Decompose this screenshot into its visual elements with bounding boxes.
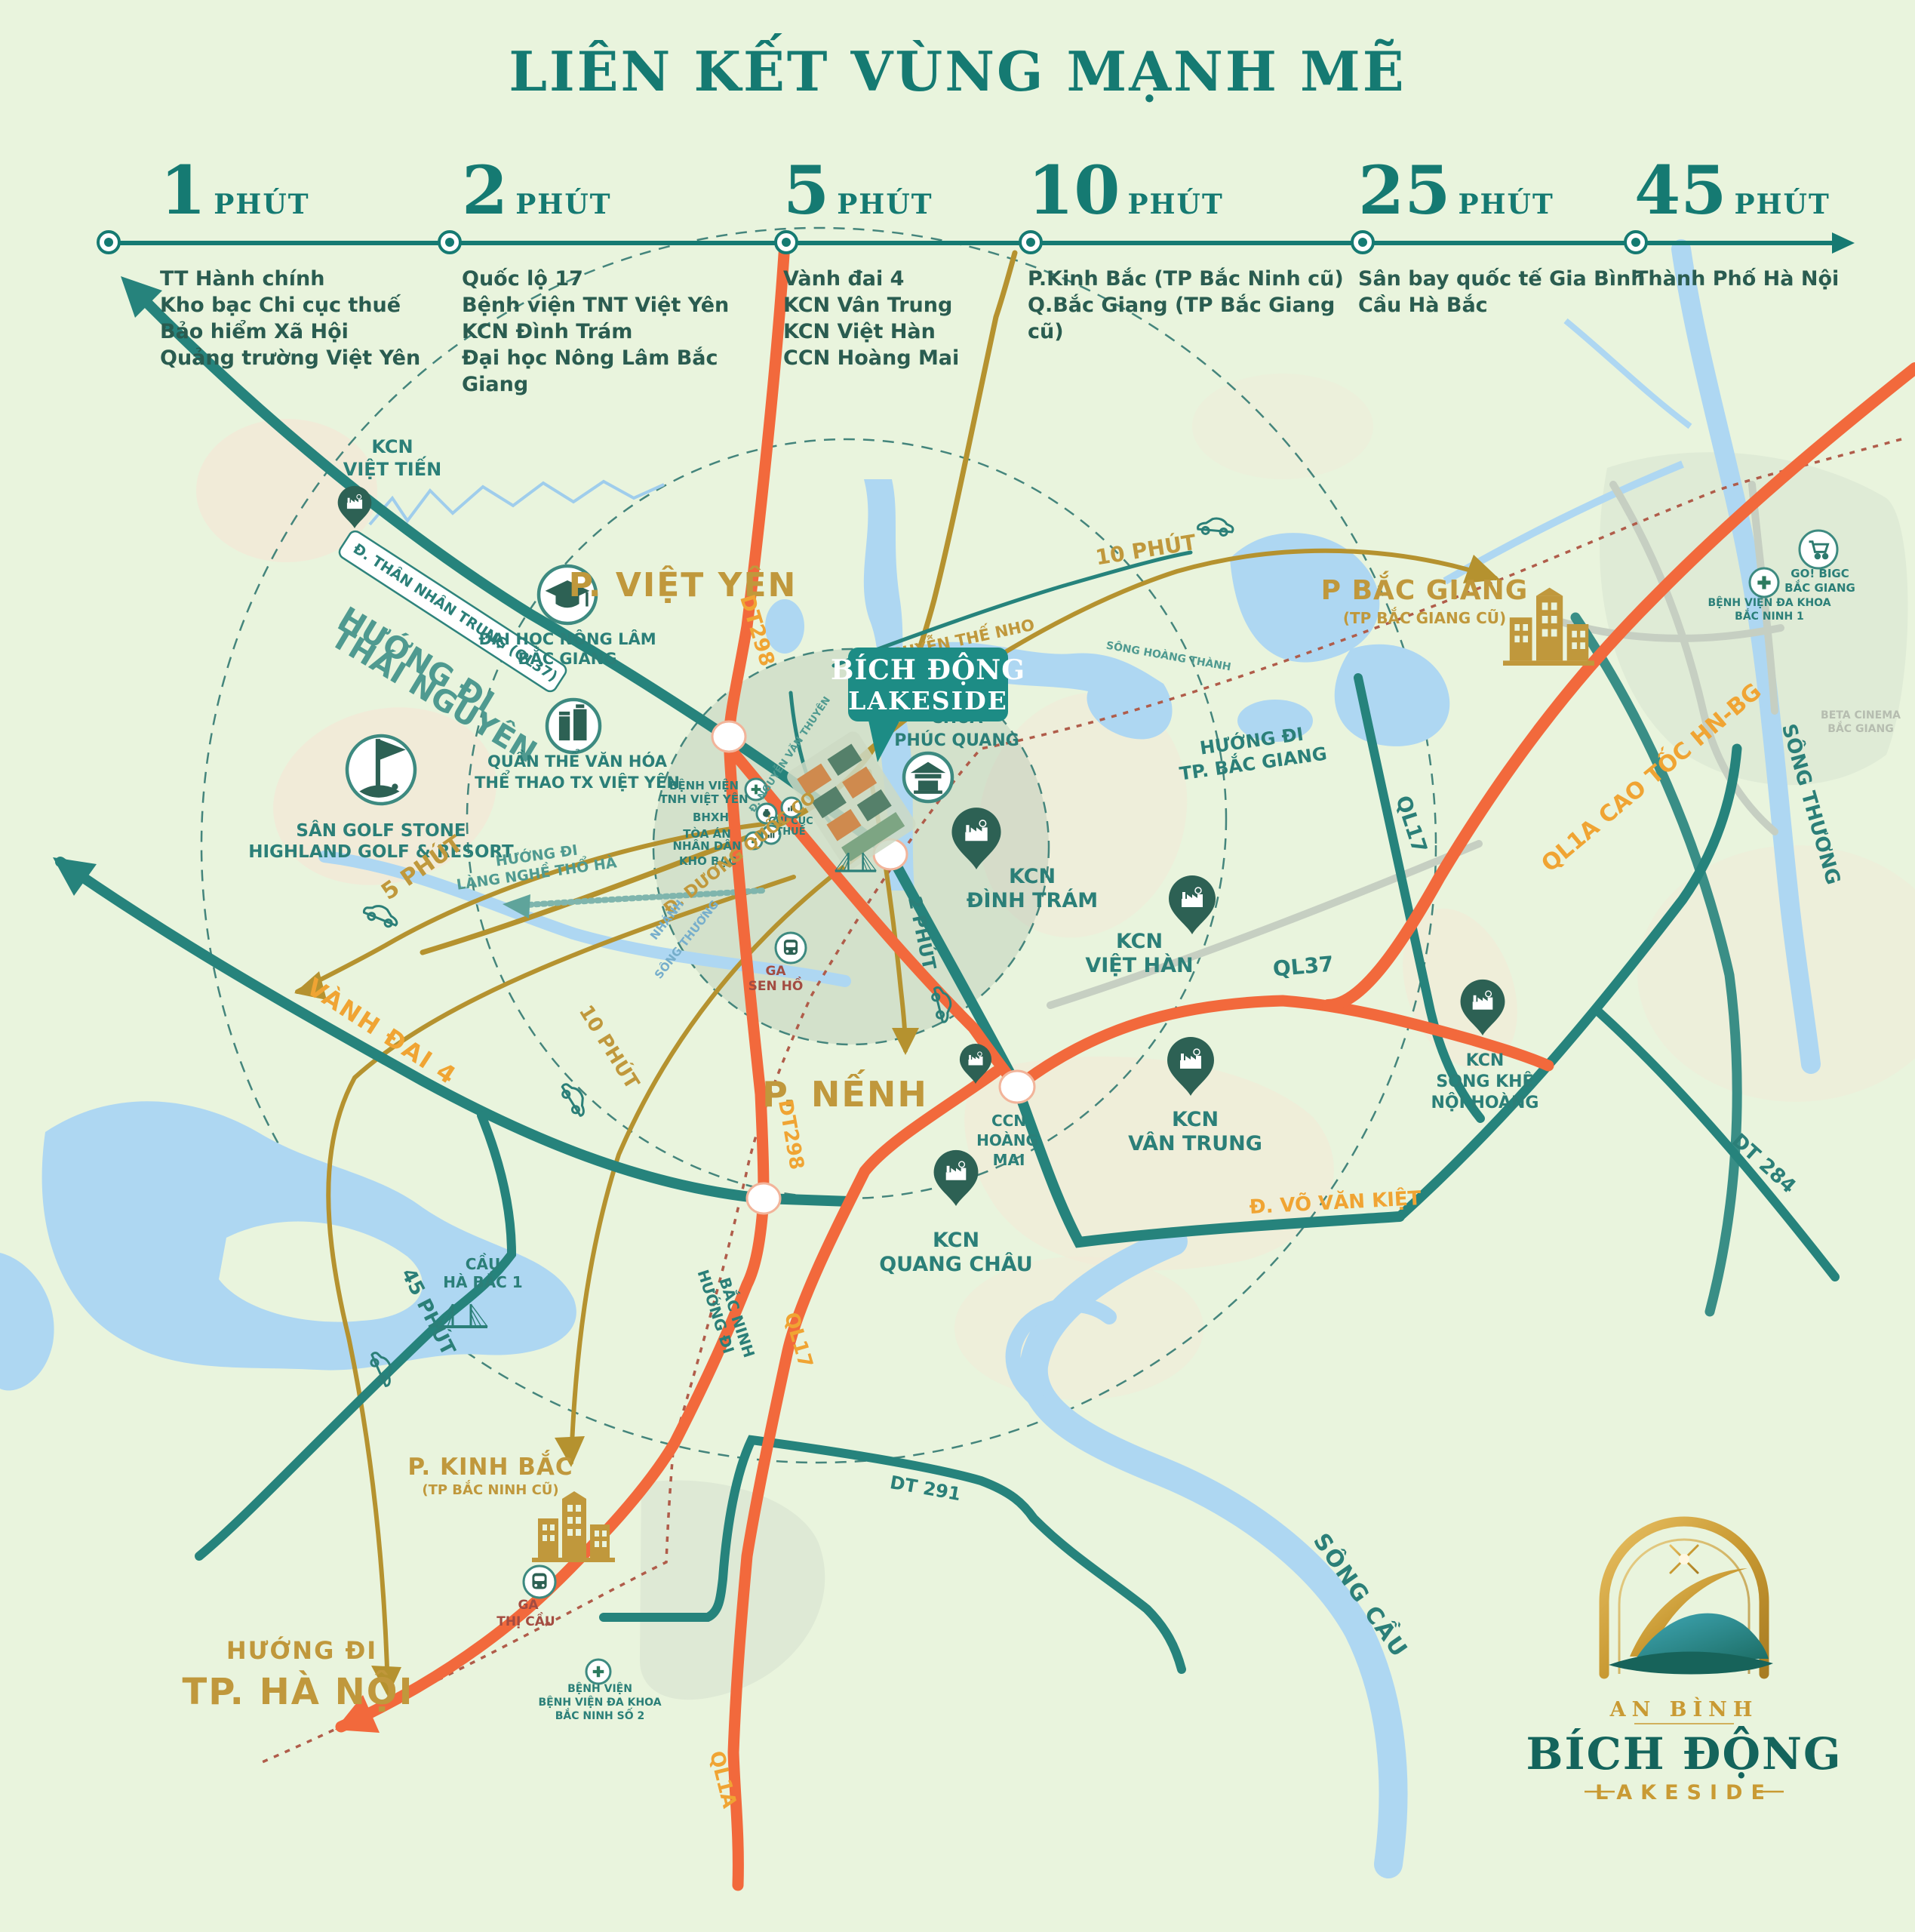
timeline-item: Bệnh viện TNT Việt Yên <box>462 292 779 318</box>
poster: LIÊN KẾT VÙNG MẠNH MẼ 1PHÚTTT Hành chính… <box>0 0 1915 1932</box>
timeline-item: Q.Bắc Giang (TP Bắc Giang cũ) <box>1028 292 1345 345</box>
timeline-column-2: 2PHÚTQuốc lộ 17Bệnh viện TNT Việt YênKCN… <box>462 151 779 398</box>
timeline-item: Quốc lộ 17 <box>462 266 779 292</box>
timeline: 1PHÚTTT Hành chínhKho bạc Chi cục thuếBả… <box>0 0 1915 1932</box>
timeline-ring <box>1624 230 1648 254</box>
timeline-item: Cầu Hà Bắc <box>1358 292 1675 318</box>
timeline-item: Đại học Nông Lâm Bắc Giang <box>462 345 779 398</box>
timeline-item: TT Hành chính <box>160 266 477 292</box>
timeline-ring <box>774 230 798 254</box>
timeline-item: Thành Phố Hà Nội <box>1634 266 1915 292</box>
timeline-ring <box>97 230 121 254</box>
timeline-item: Sân bay quốc tế Gia Bình <box>1358 266 1675 292</box>
timeline-item: Quảng trường Việt Yên <box>160 345 477 371</box>
timeline-ring <box>1351 230 1375 254</box>
timeline-minutes: 2PHÚT <box>462 151 779 240</box>
timeline-item: Bảo hiểm Xã Hội <box>160 318 477 345</box>
timeline-item: Kho bạc Chi cục thuế <box>160 292 477 318</box>
timeline-item: CCN Hoàng Mai <box>783 345 1100 371</box>
timeline-minutes: 1PHÚT <box>160 151 477 240</box>
timeline-minutes: 25PHÚT <box>1358 151 1675 240</box>
timeline-column-45: 45PHÚTThành Phố Hà Nội <box>1634 151 1915 292</box>
timeline-column-1: 1PHÚTTT Hành chínhKho bạc Chi cục thuếBả… <box>160 151 477 371</box>
timeline-column-10: 10PHÚTP.Kinh Bắc (TP Bắc Ninh cũ)Q.Bắc G… <box>1028 151 1345 345</box>
timeline-minutes: 45PHÚT <box>1634 151 1915 240</box>
timeline-minutes: 10PHÚT <box>1028 151 1345 240</box>
timeline-ring <box>438 230 462 254</box>
timeline-item: P.Kinh Bắc (TP Bắc Ninh cũ) <box>1028 266 1345 292</box>
timeline-item: KCN Đình Trám <box>462 318 779 345</box>
timeline-ring <box>1019 230 1043 254</box>
